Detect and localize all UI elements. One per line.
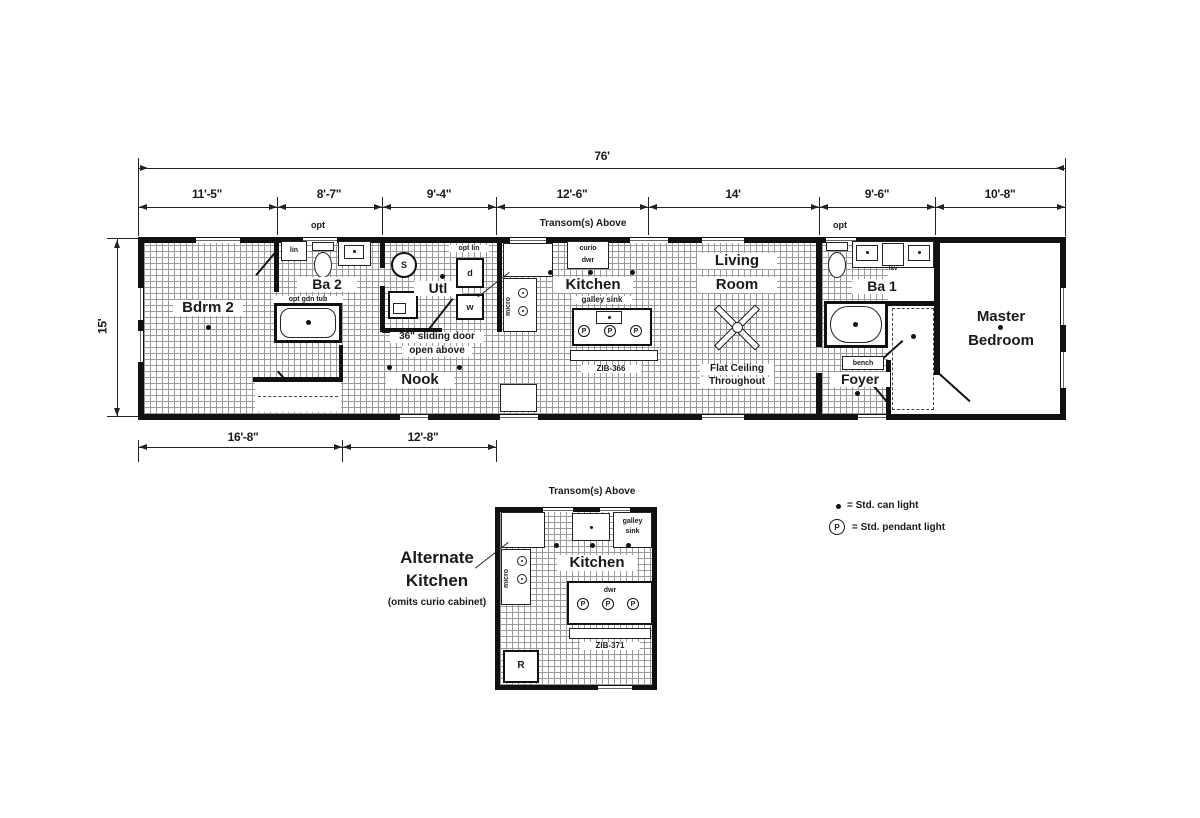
pendant-light: P — [602, 598, 614, 610]
bench-label: bench — [842, 360, 884, 367]
dim-tick — [277, 197, 278, 235]
room-label-living-1: Living — [697, 253, 777, 269]
can-light — [855, 391, 860, 396]
dim-tick — [496, 197, 497, 235]
toilet — [314, 252, 332, 278]
toilet-tank — [826, 242, 848, 251]
can-light — [206, 325, 211, 330]
wall — [274, 240, 279, 292]
dim-label-5: 14' — [698, 188, 768, 201]
flat-ceiling-note-2: Throughout — [700, 377, 774, 388]
can-light — [554, 543, 559, 548]
faucet — [353, 250, 356, 253]
dim-tick — [107, 238, 138, 239]
can-light — [590, 543, 595, 548]
alt-microwave-label: micro — [503, 556, 513, 600]
dim-tick — [819, 197, 820, 235]
pendant-light: P — [627, 598, 639, 610]
model-number-alt: ZIB-371 — [580, 642, 640, 650]
alt-title-2: Kitchen — [377, 572, 497, 590]
can-light — [911, 334, 916, 339]
ceiling-fan-hub — [732, 322, 743, 333]
dim-label-6: 9'-6" — [842, 188, 912, 201]
wall — [339, 345, 343, 382]
faucet — [608, 316, 611, 319]
room-label-ba1: Ba 1 — [852, 279, 912, 294]
can-light — [440, 274, 445, 279]
overall-width-dim-line — [138, 168, 1066, 169]
window — [702, 238, 744, 243]
wall — [888, 301, 934, 306]
window — [1061, 288, 1066, 325]
alt-drawer-label: dwr — [585, 587, 635, 594]
can-light — [630, 270, 635, 275]
can-light — [548, 270, 553, 275]
wall — [497, 240, 502, 332]
dim-tick — [138, 197, 139, 235]
dim-arrow — [114, 408, 120, 416]
dim-tick — [138, 440, 139, 462]
bottom-dim-line — [138, 447, 496, 448]
door-opening — [500, 415, 538, 420]
legend-pendant-label: = Std. pendant light — [852, 523, 945, 534]
sliding-door-note-1: 36" sliding door — [390, 332, 484, 343]
alt-galley-label-2: sink — [613, 528, 652, 535]
legend-pendant-symbol: P — [829, 519, 845, 535]
opt-window-note-ba1: opt — [825, 221, 855, 230]
dim-tick — [342, 440, 343, 462]
dim-label-7: 10'-8" — [965, 188, 1035, 201]
dim-tick — [382, 197, 383, 235]
dim-arrow — [1056, 165, 1064, 171]
dim-label-3: 9'-4" — [404, 188, 474, 201]
wall — [816, 240, 822, 347]
dim-tick — [107, 416, 138, 417]
room-label-util: Utl — [414, 281, 462, 296]
window — [138, 288, 143, 320]
wall — [380, 286, 385, 332]
burner — [518, 288, 528, 298]
can-light — [457, 365, 462, 370]
bottom-dim-label-1: 16'-8" — [208, 431, 278, 444]
room-label-ba2: Ba 2 — [297, 277, 357, 292]
laundry-tub-basin — [393, 303, 406, 314]
washer-label: w — [456, 303, 484, 312]
alt-galley-label-1: galley — [613, 518, 652, 525]
room-label-master-1: Master — [960, 309, 1042, 325]
drawer-label: dwr — [567, 257, 609, 264]
pendant-light: P — [577, 598, 589, 610]
flat-ceiling-note-1: Flat Ceiling — [700, 364, 774, 375]
alt-transom-note: Transom(s) Above — [542, 487, 642, 498]
can-light — [387, 365, 392, 370]
can-light — [306, 320, 311, 325]
pendant-light: P — [578, 325, 590, 337]
dim-tick — [496, 440, 497, 462]
window — [1061, 352, 1066, 388]
transom-note: Transom(s) Above — [533, 219, 633, 230]
room-label-foyer: Foyer — [830, 372, 890, 387]
wall — [934, 243, 940, 375]
dim-label-2: 8'-7" — [294, 188, 364, 201]
door-landing — [500, 384, 537, 412]
bottom-dim-label-2: 12'-8" — [388, 431, 458, 444]
room-label-living-2: Room — [697, 277, 777, 293]
linen-label: lin — [281, 247, 307, 254]
overall-height-label: 15' — [97, 311, 110, 341]
toilet — [828, 252, 846, 278]
window — [138, 331, 143, 362]
dryer-label: d — [456, 269, 484, 278]
window — [543, 508, 573, 512]
opt-linen-label: opt lin — [449, 245, 489, 252]
alt-kitchen-label: Kitchen — [557, 555, 637, 571]
legend-can-light-symbol — [836, 504, 841, 509]
room-label-bdrm2: Bdrm 2 — [173, 300, 243, 316]
overall-width-label: 76' — [572, 150, 632, 163]
height-dim-line — [117, 239, 118, 417]
curio-label: curio — [567, 245, 609, 252]
alt-subtitle: (omits curio cabinet) — [367, 598, 507, 609]
dim-arrow — [114, 240, 120, 248]
can-light — [588, 270, 593, 275]
microwave-label: micro — [505, 284, 515, 328]
lav-label: lav — [880, 266, 906, 273]
window — [400, 415, 428, 420]
faucet — [866, 251, 869, 254]
dim-tick — [1065, 197, 1066, 235]
room-label-master-2: Bedroom — [960, 333, 1042, 349]
window — [598, 686, 632, 690]
sliding-door-note-2: open above — [402, 346, 472, 357]
entry-door-opening — [858, 415, 886, 420]
model-number-main: ZIB-366 — [581, 365, 641, 373]
wall — [816, 373, 822, 416]
dim-label-4: 12'-6" — [537, 188, 607, 201]
water-heater-label: S — [391, 261, 417, 270]
room-label-nook: Nook — [386, 372, 454, 388]
window — [196, 238, 240, 243]
wall — [380, 240, 385, 268]
wall — [886, 360, 891, 416]
dim-tick — [935, 197, 936, 235]
pendant-light: P — [630, 325, 642, 337]
alt-island-counter — [569, 628, 651, 639]
dim-label-1: 11'-5" — [172, 188, 242, 201]
legend-can-light-label: = Std. can light — [847, 501, 918, 512]
dim-arrow — [140, 165, 148, 171]
toilet-tank — [312, 242, 334, 251]
burner — [518, 306, 528, 316]
window — [630, 238, 668, 243]
can-light — [998, 325, 1003, 330]
floorplan-canvas: 76' 11'-5" 8'-7" 9'-4" 12'-6" 14' 9'-6" … — [0, 0, 1200, 818]
burner — [517, 574, 527, 584]
galley-sink-label: galley sink — [572, 296, 632, 304]
pendant-light: P — [604, 325, 616, 337]
burner — [517, 556, 527, 566]
room-label-kitchen: Kitchen — [553, 277, 633, 293]
closet-rod — [258, 396, 338, 397]
can-light — [626, 543, 631, 548]
corner-pantry — [503, 243, 553, 277]
cabinet-knob — [590, 526, 593, 529]
dim-tick — [648, 197, 649, 235]
window — [702, 415, 744, 420]
faucet — [918, 251, 921, 254]
walkin-closet — [892, 308, 934, 410]
vanity-cabinet — [882, 243, 904, 266]
closet — [255, 382, 341, 412]
can-light — [853, 322, 858, 327]
refrigerator-label: R — [503, 661, 539, 672]
island-counter — [570, 350, 658, 361]
opt-window-note-ba2: opt — [303, 221, 333, 230]
